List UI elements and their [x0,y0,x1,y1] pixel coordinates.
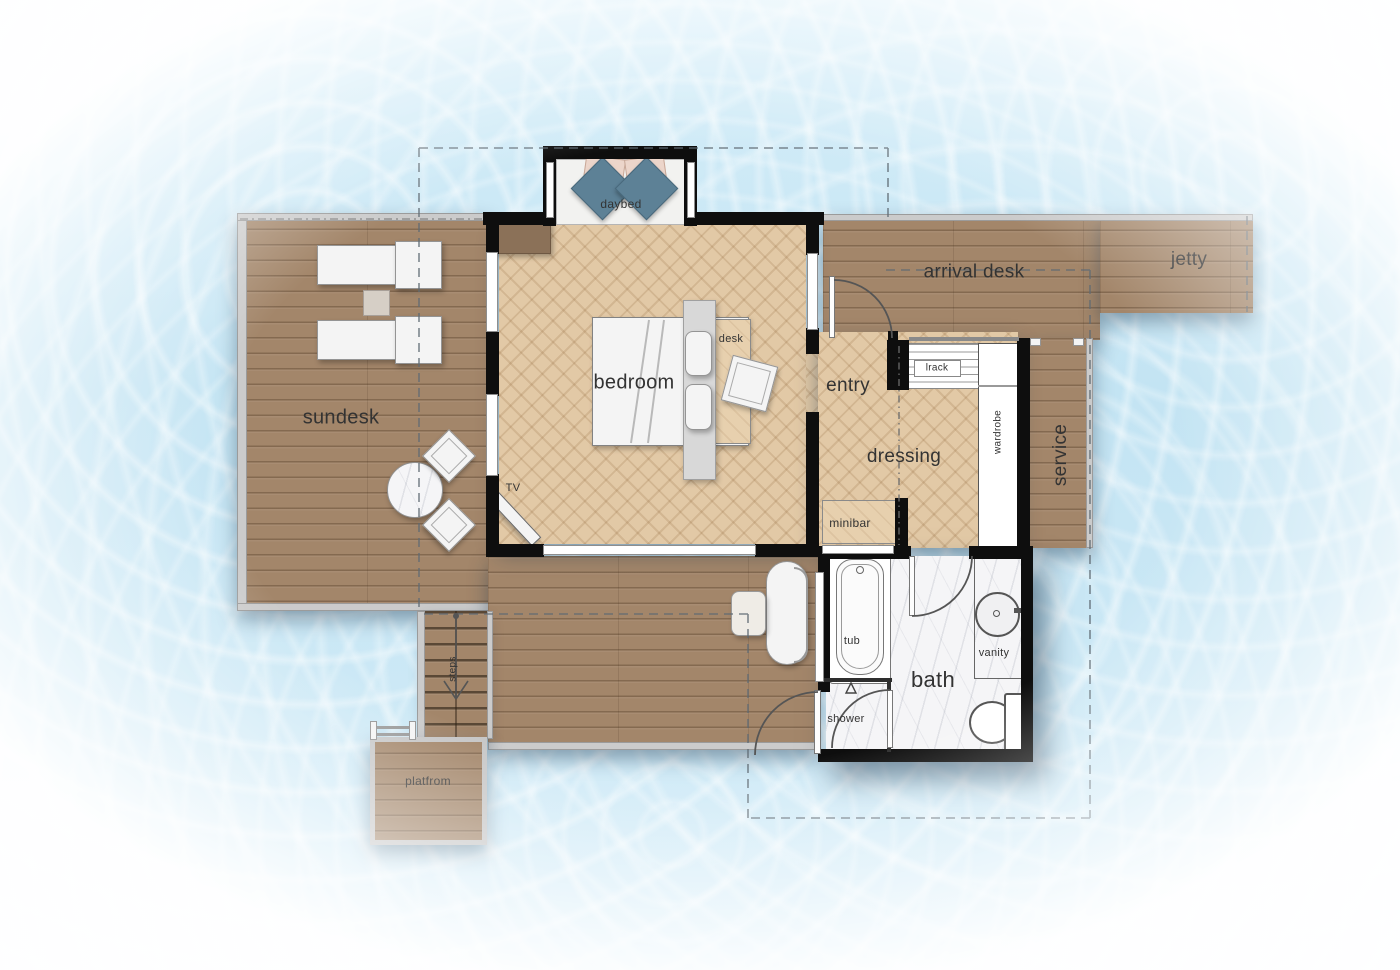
ladder-post [370,721,377,740]
bathtub-basin [841,564,879,669]
label-arrival-desk: arrival desk [914,262,1034,285]
label-vanity: vanity [979,647,1010,659]
window [687,162,695,218]
label-minibar: minibar [829,516,870,530]
label-dressing: dressing [867,446,941,468]
bath-wall-top-right [969,546,1033,559]
bath-wall-bottom [818,749,1033,762]
steps-stringer-left [417,611,425,739]
outdoor-side-table [731,591,766,636]
label-lrack: lrack [926,363,949,374]
sun-lounger-backrest [395,316,442,364]
dressing-wall-corner [887,340,909,390]
service-fascia-right [1086,338,1093,548]
bed-pillow [685,331,712,376]
bathtub-faucet [856,566,864,574]
bath-door-leaf [909,556,915,616]
bedroom-wall-bottom [486,544,544,557]
bedroom-wall-left [486,332,499,396]
window [822,545,894,554]
bedroom-wall-top-right [694,212,824,225]
window [486,394,498,476]
sundesk-fascia-top [237,213,490,221]
ladder-post [409,721,416,740]
outdoor-lounger-back [794,567,808,663]
bed-pillow [685,384,712,430]
label-service: service [1050,424,1072,486]
sink-drain [993,610,1000,617]
window [807,253,818,330]
window [815,572,824,682]
window-sliding-door [543,545,756,555]
label-jetty: jetty [1171,249,1207,271]
label-daybed: daybed [600,197,641,211]
label-desk: desk [719,333,743,345]
sundesk-fascia-left [237,213,247,611]
label-platform: platfrom [405,774,451,788]
window [546,162,554,218]
steps-stringer-right [487,611,493,739]
service-deck-tab [1030,338,1041,346]
window [486,252,498,332]
lower-deck-fascia [488,742,820,750]
label-bath: bath [911,667,955,693]
platform-fascia [370,737,487,845]
label-bedroom: bedroom [593,372,674,395]
wardrobe-wall-right [1017,338,1030,548]
shower-wall-h [820,678,892,682]
nook-wall-top [543,146,696,159]
label-tv: TV [506,482,521,494]
bath-wall-right [1021,559,1033,749]
water-villa-floor-plan: daybed arrival desk jetty sundesk bedroo… [0,0,1400,970]
bedroom-wall-right [806,223,819,255]
deck-door-leaf [814,690,821,754]
side-table [363,290,390,316]
sun-lounger-backrest [395,241,442,289]
minibar-wall-right [895,498,908,553]
bedroom-wall-right [806,412,819,553]
label-entry: entry [826,375,870,397]
entry-door-leaf [829,276,835,338]
sundesk-fascia-bottom [237,603,490,611]
service-deck-tab [1073,338,1084,346]
label-wardrobe: wardrobe [993,410,1004,454]
wardrobe-divider [978,385,1019,387]
label-shower: shower [827,713,864,725]
label-sundesk: sundesk [303,407,380,430]
shower-door-leaf [887,690,893,748]
jetty-fascia-top [823,214,1253,221]
label-steps: steps [448,656,459,681]
label-tub: tub [844,635,860,647]
bedroom-wall-left [486,212,499,254]
round-table [387,462,443,518]
bedroom-wall-right [806,328,819,354]
dressing-top-edge [909,337,1019,341]
